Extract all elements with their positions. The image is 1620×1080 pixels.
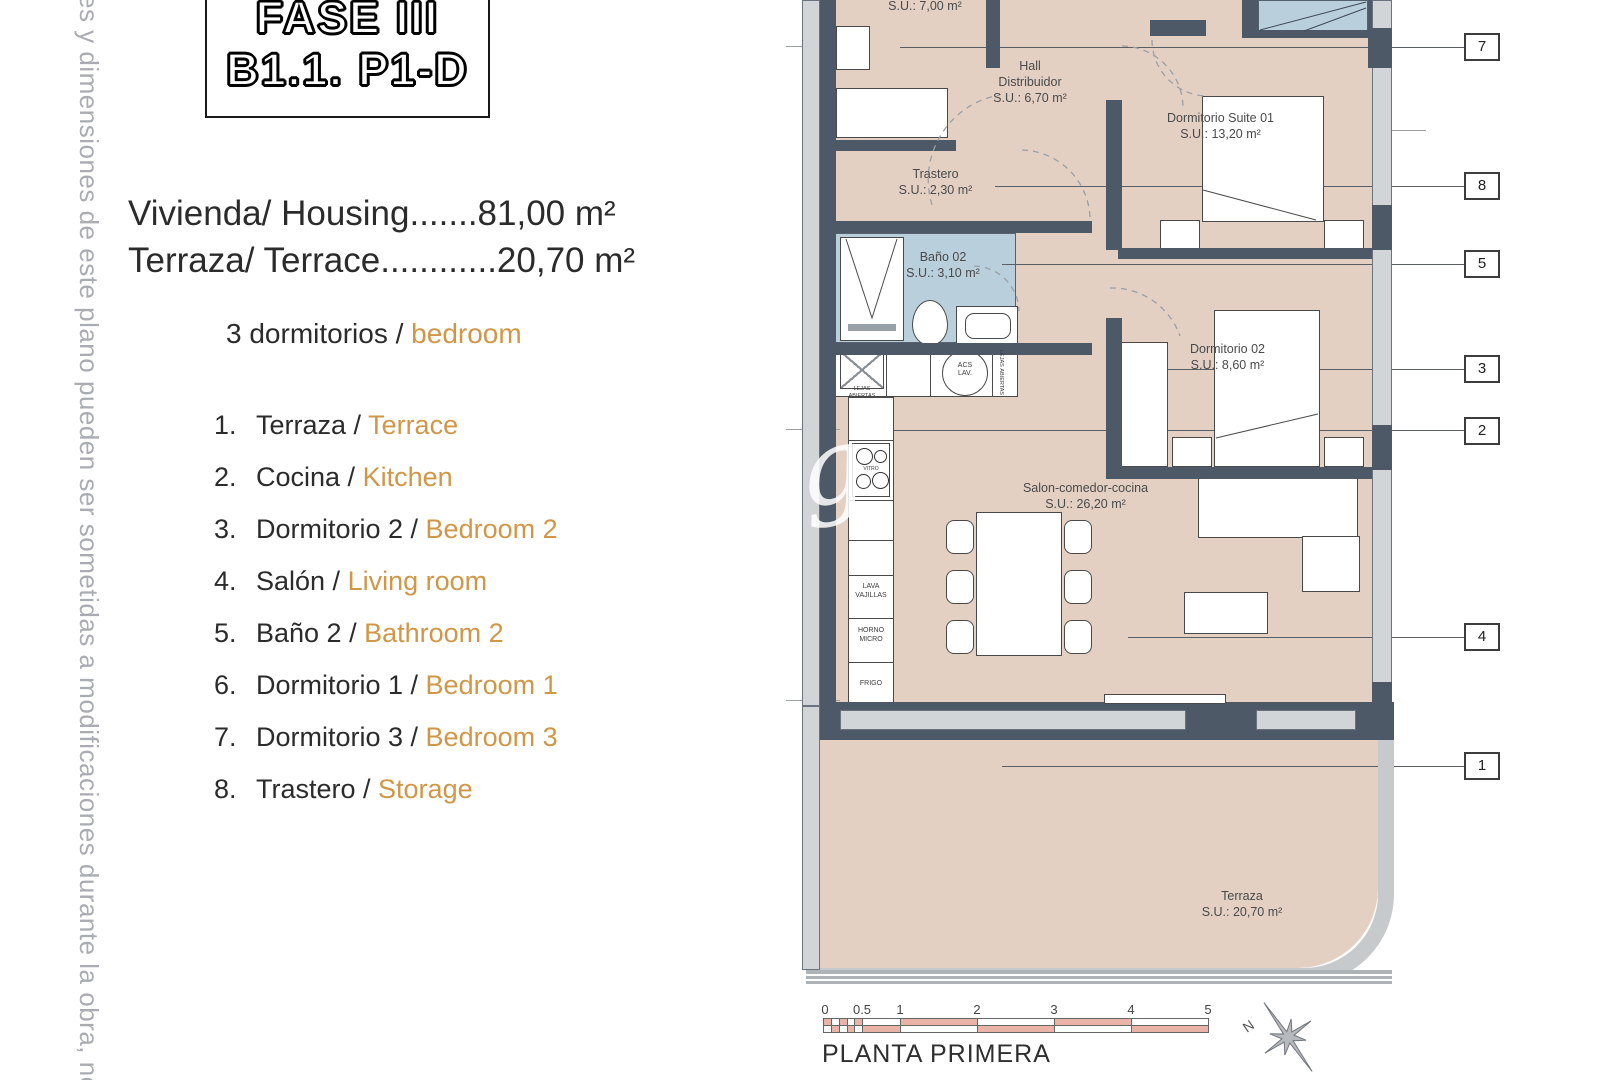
cabinet-divider [848, 500, 894, 501]
bathroom2-name: Baño 02 [868, 249, 1018, 265]
bedroom2-nightstand [1324, 437, 1364, 467]
legend-num: 8. [214, 774, 256, 805]
abiertas-text: ABIERTAS [836, 393, 888, 400]
legend-item: 4.Salón / Living room [214, 566, 558, 618]
cabinet-divider [848, 575, 894, 576]
wall-suite-dorm2 [1118, 248, 1374, 259]
bedroom3-wardrobe [836, 88, 948, 138]
unit-code: B1.1. P1-D [207, 44, 488, 96]
wall-left-outer [820, 0, 836, 712]
hall-area: S.U.: 6,70 m² [955, 90, 1105, 106]
bathroom2-area: S.U.: 3,10 m² [868, 265, 1018, 281]
lava-text: LAVA [848, 582, 894, 591]
hall-name1: Hall [955, 58, 1105, 74]
cabinet-divider [848, 440, 894, 441]
bedroom3-area-label: S.U.: 7,00 m² [855, 0, 995, 14]
bedrooms-en: bedroom [411, 318, 522, 349]
area-summary: Vivienda/ Housing.......81,00 m² Terraza… [128, 190, 635, 284]
acs-label: ACS [943, 362, 987, 370]
bedrooms-es: 3 dormitorios / [226, 318, 411, 349]
sink-basin [965, 313, 1011, 339]
hall-label: Hall Distribuidor S.U.: 6,70 m² [955, 58, 1105, 106]
salon-glazing [1256, 710, 1356, 730]
side-disclaimer-text: es y dimensiones de este plano pueden se… [73, 0, 104, 1080]
scale-cell [1131, 1025, 1209, 1033]
plan-caption: PLANTA PRIMERA [822, 1040, 1051, 1069]
bathroom2-label: Baño 02 S.U.: 3,10 m² [868, 249, 1018, 281]
compass-star [1241, 987, 1335, 1080]
legend-num: 7. [214, 722, 256, 753]
legend-en: Living room [348, 566, 488, 596]
cabinet-divider [848, 662, 894, 663]
right-window-band [1372, 0, 1392, 706]
sink-unit-cross [840, 351, 884, 389]
sofa-chaise [1302, 536, 1360, 592]
chair [946, 570, 974, 604]
wall-right-segment [1372, 425, 1392, 470]
fridge-label: FRIGO [848, 680, 894, 687]
burner [856, 474, 871, 489]
wall-suite-shower [1256, 30, 1370, 38]
callout-2: 2 [1464, 417, 1500, 445]
compass-rose [1241, 987, 1335, 1080]
wall-right-segment [1372, 205, 1392, 250]
hall-name2: Distribuidor [955, 74, 1105, 90]
callout-5: 5 [1464, 250, 1500, 278]
terrace-area-line: Terraza/ Terrace............20,70 m² [128, 237, 635, 284]
open-shelves-label: LEJAS ABIERTAS [836, 386, 888, 400]
scale-cell [862, 1025, 901, 1033]
wall-bath-kitchen [828, 343, 1092, 355]
abiertas-text: ABIERTAS [998, 369, 1004, 396]
scale-tick-label: 2 [973, 1002, 980, 1017]
terrace-area: S.U.: 20,70 m² [1158, 904, 1326, 920]
terrace-label: Terraza S.U.: 20,70 m² [1158, 888, 1326, 920]
bedroom2-name: Dormitorio 02 [1145, 341, 1310, 357]
wall-trastero-bath [834, 221, 1092, 233]
bedrooms-line: 3 dormitorios / bedroom [226, 318, 522, 350]
bedroom2-area: S.U.: 8,60 m² [1145, 357, 1310, 373]
callout-3: 3 [1464, 355, 1500, 383]
lejas-text: LEJAS [836, 386, 888, 393]
chair [1064, 570, 1092, 604]
scale-cell [1054, 1025, 1132, 1033]
lejas-text: LEJAS [998, 350, 1004, 367]
legend-es: Dormitorio 1 / [256, 670, 426, 700]
legend-es: Terraza / [256, 410, 368, 440]
burner [872, 472, 889, 489]
bedroom3-furniture [836, 26, 870, 70]
suite-label: Dormitorio Suite 01 S.U.: 13,20 m² [1128, 110, 1313, 142]
callout-1: 1 [1464, 752, 1500, 780]
scale-tick-label: 4 [1127, 1002, 1134, 1017]
salon-glazing [840, 710, 1186, 730]
scale-tick-label: 5 [1204, 1002, 1211, 1017]
legend-item: 3.Dormitorio 2 / Bedroom 2 [214, 514, 558, 566]
salon-label: Salon-comedor-cocina S.U.: 26,20 m² [998, 480, 1173, 512]
sink [956, 306, 1018, 344]
legend-item: 6.Dormitorio 1 / Bedroom 1 [214, 670, 558, 722]
legend-es: Baño 2 / [256, 618, 364, 648]
scale-cell [900, 1025, 978, 1033]
vajillas-text: VAJILLAS [848, 591, 894, 600]
wall-right-segment [1372, 28, 1392, 68]
wall-dorm2-salon [1106, 467, 1374, 479]
lav-label: LAV. [943, 370, 987, 378]
scale-tick-label: 0 [821, 1002, 828, 1017]
scale-tick-label: 0.5 [853, 1002, 871, 1017]
cabinet-divider [848, 540, 894, 541]
axis-mark [1386, 130, 1426, 131]
cabinet-divider [848, 618, 894, 619]
legend-en: Bedroom 2 [426, 514, 558, 544]
terrace-bottom-band [806, 970, 1392, 984]
room-legend: 1.Terraza / Terrace 2.Cocina / Kitchen 3… [214, 410, 558, 826]
chair [946, 620, 974, 654]
cooktop: VITRO [852, 443, 890, 497]
scale-cell [977, 1025, 1055, 1033]
leader-line-5 [1002, 264, 1464, 265]
wall-hall-suite [1106, 100, 1122, 250]
legend-en: Terrace [368, 410, 458, 440]
dining-table [976, 512, 1062, 656]
chair [1064, 520, 1092, 554]
sofa [1198, 476, 1358, 538]
housing-area-line: Vivienda/ Housing.......81,00 m² [128, 190, 635, 237]
legend-num: 1. [214, 410, 256, 441]
wall-dorm3-trastero [834, 140, 956, 151]
scale-bar: 0 0.5 1 2 3 4 5 [823, 1002, 1209, 1038]
trastero-area: S.U.: 2,30 m² [858, 182, 1013, 198]
scale-tick-label: 1 [896, 1002, 903, 1017]
legend-en: Bedroom 3 [426, 722, 558, 752]
micro-text: MICRO [848, 635, 894, 644]
open-shelves-label-vertical: LEJAS ABIERTAS [997, 350, 1004, 396]
legend-es: Dormitorio 2 / [256, 514, 426, 544]
sliding-door [1104, 694, 1226, 704]
legend-num: 4. [214, 566, 256, 597]
legend-es: Cocina / [256, 462, 363, 492]
wall-hall-dorm2 [1106, 318, 1122, 470]
bedroom2-bed [1214, 310, 1320, 467]
coffee-table [1184, 592, 1268, 634]
vitro-label: VITRO [853, 466, 889, 472]
toilet [912, 300, 948, 346]
left-window-band [802, 0, 820, 706]
callout-4: 4 [1464, 623, 1500, 651]
horno-text: HORNO [848, 626, 894, 635]
legend-num: 3. [214, 514, 256, 545]
plan-title-box: FASE III B1.1. P1-D [205, 0, 490, 118]
leader-line-4 [1128, 637, 1464, 638]
burner [856, 448, 873, 465]
legend-item: 8.Trastero / Storage [214, 774, 558, 826]
legend-item: 7.Dormitorio 3 / Bedroom 3 [214, 722, 558, 774]
suite-name: Dormitorio Suite 01 [1128, 110, 1313, 126]
oven-micro-label: HORNO MICRO [848, 626, 894, 644]
salon-name: Salon-comedor-cocina [998, 480, 1173, 496]
phase-title: FASE III [207, 0, 488, 44]
shower-drain [848, 324, 896, 331]
floor-plan-sheet: es y dimensiones de este plano pueden se… [0, 0, 1620, 1080]
terrace-name: Terraza [1158, 888, 1326, 904]
water-heater: ACS LAV. [942, 350, 988, 396]
legend-en: Bedroom 1 [426, 670, 558, 700]
callout-8: 8 [1464, 172, 1500, 200]
compass-north-label: N [1240, 1017, 1257, 1036]
legend-item: 1.Terraza / Terrace [214, 410, 558, 462]
legend-en: Kitchen [363, 462, 453, 492]
trastero-label: Trastero S.U.: 2,30 m² [858, 166, 1013, 198]
legend-num: 6. [214, 670, 256, 701]
wall-right-segment [1372, 682, 1392, 710]
wall-entry [1150, 20, 1206, 36]
terrace-left-band [802, 706, 820, 970]
legend-es: Trastero / [256, 774, 378, 804]
dishwasher-label: LAVA VAJILLAS [848, 582, 894, 600]
callout-7: 7 [1464, 33, 1500, 61]
legend-es: Salón / [256, 566, 348, 596]
legend-num: 5. [214, 618, 256, 649]
salon-area: S.U.: 26,20 m² [998, 496, 1173, 512]
scale-tick-label: 3 [1050, 1002, 1057, 1017]
trastero-name: Trastero [858, 166, 1013, 182]
legend-en: Bathroom 2 [364, 618, 504, 648]
legend-es: Dormitorio 3 / [256, 722, 426, 752]
bedroom2-label: Dormitorio 02 S.U.: 8,60 m² [1145, 341, 1310, 373]
suite-shower [1258, 0, 1368, 32]
bedroom2-nightstand [1172, 437, 1212, 467]
chair [946, 520, 974, 554]
chair [1064, 620, 1092, 654]
legend-en: Storage [378, 774, 473, 804]
terrace-parapet [806, 702, 1394, 984]
legend-item: 2.Cocina / Kitchen [214, 462, 558, 514]
legend-item: 5.Baño 2 / Bathroom 2 [214, 618, 558, 670]
burner [874, 450, 887, 463]
suite-area: S.U.: 13,20 m² [1128, 126, 1313, 142]
legend-num: 2. [214, 462, 256, 493]
